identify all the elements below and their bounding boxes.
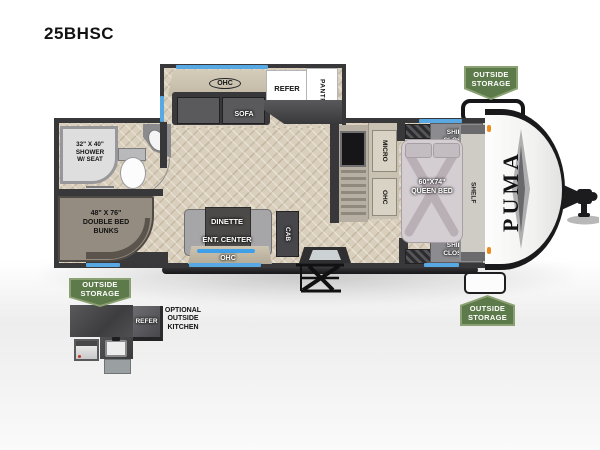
ohc-bottom-label: OHC (210, 254, 246, 263)
kitchen-tall-cabinet: MICRO OHC (368, 123, 399, 219)
kitchen-wall (330, 123, 339, 223)
window-bedroom-top (419, 119, 462, 123)
shower-label: 32" X 40" SHOWER W/ SEAT (65, 141, 115, 164)
outside-kitchen-sink-block (100, 337, 133, 359)
slideout-ohc-label: OHC (206, 76, 244, 90)
sofa-label: SOFA (224, 108, 264, 120)
bath-wall-bottom (57, 189, 163, 196)
window-dinette (189, 263, 261, 267)
pillow (405, 143, 432, 158)
faucet (112, 337, 120, 341)
window-bunks (86, 263, 120, 267)
storage-compartment-door (464, 272, 506, 294)
cab-label: CAB (284, 227, 291, 241)
outside-storage-badge-front-top: OUTSIDE STORAGE (464, 66, 518, 100)
shelf-label: SHELF (470, 182, 477, 203)
micro-label: MICRO (381, 140, 388, 162)
window-slideout-top (176, 65, 268, 69)
kitchen-counter (339, 125, 368, 222)
griddle-knob (78, 355, 81, 358)
outside-refer: REFER (133, 306, 163, 341)
shelf-label-wrap: SHELF (461, 125, 485, 261)
kitchen-ohc: OHC (372, 178, 397, 216)
ent-center-label: ENT. CENTER (186, 234, 268, 245)
bunks-label: 48" X 76" DOUBLE BED BUNKS (64, 210, 148, 236)
cab-cabinet: CAB (276, 211, 299, 257)
shower: 32" X 40" SHOWER W/ SEAT (60, 126, 118, 184)
griddle-lid (76, 341, 97, 346)
bedroom-wall-top (397, 123, 405, 141)
ent-center-accent (197, 249, 255, 253)
window-slideout-side (160, 96, 164, 122)
queen-bed: 60"X74" QUEEN BED (401, 139, 463, 243)
pillow (433, 143, 460, 158)
griddle (74, 339, 99, 361)
sofa-cushion (177, 97, 220, 124)
marker-light-bottom (487, 247, 491, 254)
outside-kitchen-panel (104, 359, 131, 374)
outdoor-sink (105, 340, 127, 357)
bath-wall-right (160, 122, 167, 168)
outside-refer-label: REFER (135, 318, 157, 325)
sofa: SOFA (172, 92, 270, 125)
range-cooktop (340, 131, 366, 167)
bedroom-ohc-bottom (405, 249, 433, 264)
bedroom-ohc-top (405, 124, 433, 139)
toilet-bowl (120, 157, 146, 189)
kitchen-ohc-label: OHC (381, 190, 388, 204)
queen-bed-label: 60"X74" QUEEN BED (402, 178, 462, 196)
window-bedroom-bottom (424, 263, 459, 267)
entry-steps (293, 260, 347, 296)
ohc-oval: OHC (209, 78, 241, 89)
microwave: MICRO (372, 130, 397, 172)
entry-mat (299, 247, 351, 263)
badge-text: OUTSIDE STORAGE (464, 66, 518, 100)
front-cap: PUMA (485, 109, 565, 270)
marker-light-top (487, 125, 491, 132)
brand-name: PUMA (498, 133, 542, 249)
optional-kitchen-label: OPTIONAL OUTSIDE KITCHEN (160, 307, 206, 332)
dinette-label: DINETTE (190, 216, 264, 227)
entry-mat-inner (309, 250, 341, 260)
outside-kitchen-counter (70, 305, 133, 337)
kitchen-drawers (341, 170, 366, 218)
model-title: 25BHSC (44, 24, 114, 44)
